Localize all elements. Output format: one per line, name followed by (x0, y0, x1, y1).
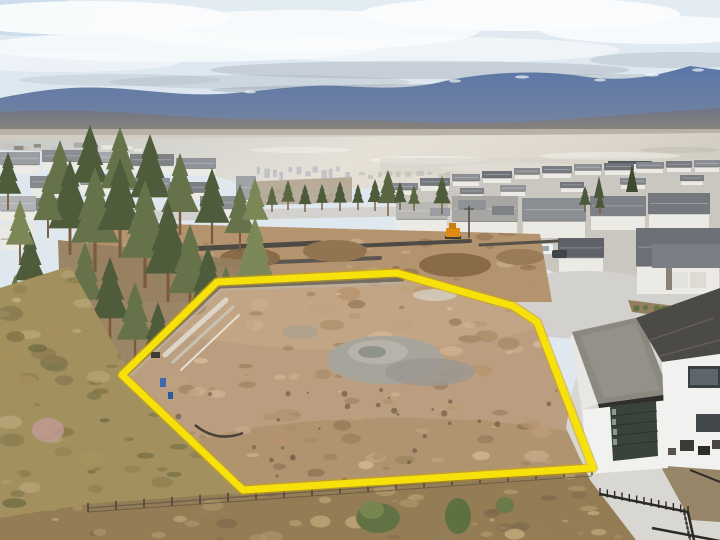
blue-barrel (160, 378, 166, 387)
window-band-lower (696, 414, 720, 432)
equipment-box (151, 352, 160, 358)
garage-door (610, 401, 658, 461)
houses-lower-row (636, 228, 720, 294)
aerial-photo (0, 0, 720, 540)
scene-svg (0, 0, 720, 540)
blue-tarp (168, 392, 173, 399)
pink-bush (32, 418, 64, 442)
